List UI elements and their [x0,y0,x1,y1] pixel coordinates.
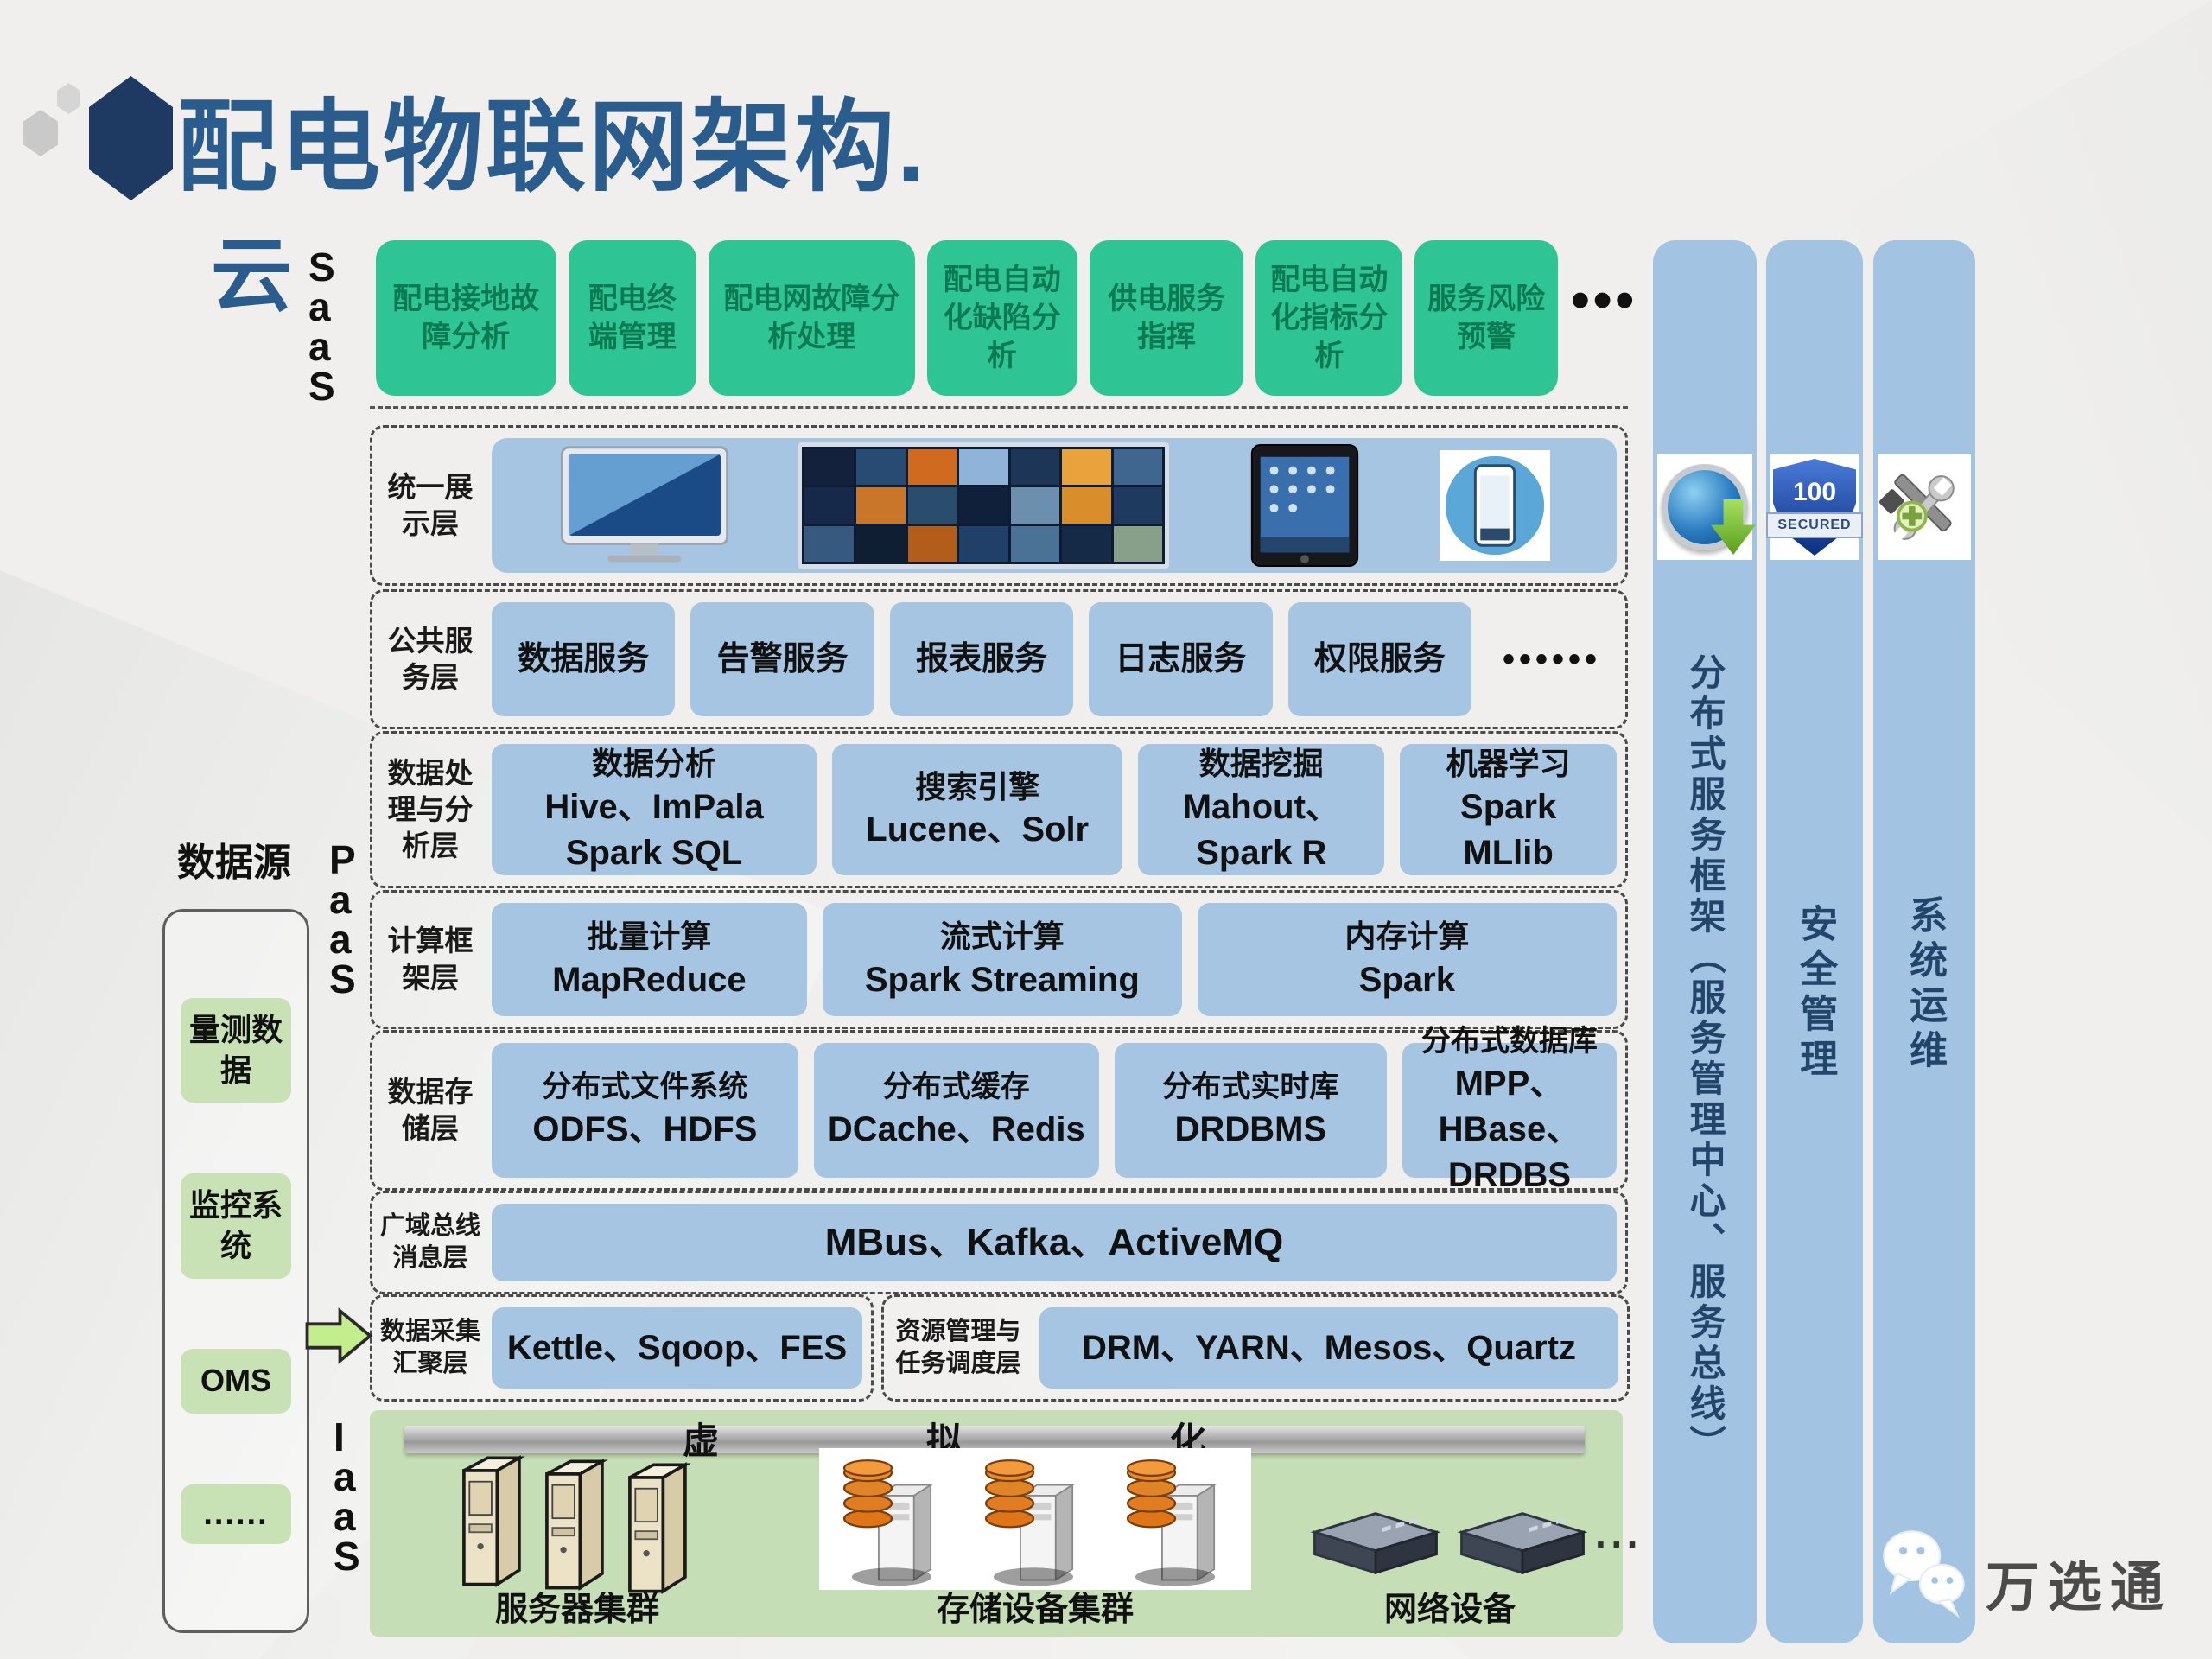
saas-ellipsis: ••• [1571,270,1637,331]
tech-box-line: Hive、ImPala [544,785,763,830]
slide-canvas: { "page": { "title": "配电物联网架构." }, "left… [0,0,2212,1659]
pillar-label: 系统运维 [1904,895,1944,1075]
tech-box-title: 内存计算 [1344,916,1469,957]
label-line: 析层 [402,828,459,864]
tech-box-title: 数据挖掘 [1199,743,1324,785]
tech-box: 搜索引擎 Lucene、Solr [832,744,1122,875]
logo-hexagon-small [23,110,58,156]
tech-box: 分布式实时库 DRDBMS [1115,1043,1387,1178]
tech-box: 数据挖掘 Mahout、 Spark R [1138,744,1384,875]
layer-common-services: 公共服 务层 数据服务 告警服务 报表服务 日志服务 权限服务 •••••• [370,589,1628,729]
globe-sync-icon [1662,464,1748,550]
label-line: 统一展 [388,469,474,505]
layer-scheduler: 资源管理与 任务调度层 DRM、YARN、Mesos、Quartz [881,1294,1630,1402]
tech-box: DRM、YARN、Mesos、Quartz [1039,1307,1618,1389]
tech-box-title: 流式计算 [940,916,1065,957]
datasource-ellipsis: ...... [181,1484,291,1544]
tech-box-line: Spark [1359,957,1455,1003]
tech-box-line: Mahout、 [1183,785,1340,830]
tech-rest: 、Redis [957,1110,1085,1148]
layer-storage: 数据存 储层 分布式文件系统 ODFS、HDFS 分布式缓存 DCache、Re… [370,1030,1628,1191]
green-arrow-icon [1711,499,1756,555]
layer-ingest: 数据采集 汇聚层 Kettle、Sqoop、FES [370,1294,874,1402]
tech-box-line: Spark SQL [566,830,743,876]
label-line: 数据存 [388,1074,474,1110]
tech-box-title: 分布式实时库 [1162,1068,1338,1107]
layer-storage-label: 数据存 储层 [372,1033,488,1188]
video-wall-icon [798,442,1169,569]
tech-box-title: 分布式数据库 [1421,1022,1598,1061]
tech-box: 批量计算 MapReduce [492,903,807,1016]
tech-box-title: 搜索引擎 [915,766,1039,808]
server-tower-icon [532,1455,615,1593]
layer-message-bus: 广域总线 消息层 MBus、Kafka、ActiveMQ [370,1191,1628,1294]
tech-box-title: 批量计算 [587,916,711,957]
label-line: 消息层 [392,1243,467,1274]
storage-cluster-group: 存储设备集群 [819,1448,1251,1630]
tech-rest: 、Kafka、ActiveMQ [929,1221,1284,1263]
saas-app-box: 配电自动化指标分析 [1255,240,1402,396]
tech-rest: 、HDFS [629,1110,758,1148]
iaas-rail-label: IaaS [334,1417,346,1576]
datasource-item: 监控系统 [181,1173,291,1279]
monitor-icon [558,444,731,567]
tech-box-line: Kettle、Sqoop、FES [507,1325,847,1371]
datasource-title: 数据源 [177,831,291,887]
label-line: 广域总线 [380,1211,480,1243]
tech-box-title: 数据分析 [592,743,716,785]
label-line: 任务调度层 [895,1348,1020,1380]
layer-display: 统一展 示层 [370,425,1628,586]
tech-box-line: Spark R [1196,830,1326,876]
service-box: 告警服务 [690,602,874,716]
pillar-iconbox [1657,454,1752,560]
pillar-iconbox: 100 SECURED [1770,454,1859,560]
dashed-separator [370,406,1628,409]
storage-array-icon [824,1448,959,1590]
layer-bus-label: 广域总线 消息层 [372,1193,488,1292]
pillar-label: 安全管理 [1795,904,1834,1084]
label-line: 汇聚层 [392,1348,467,1380]
layer-processing: 数据处 理与分 析层 数据分析 Hive、ImPala Spark SQL 搜索… [370,731,1628,888]
tech-box: 内存计算 Spark [1198,903,1617,1016]
shield-banner: SECURED [1766,512,1863,538]
layer-compute-label: 计算框 架层 [372,893,488,1027]
tech-bold: ODFS [532,1110,628,1148]
label-line: 架层 [402,960,459,996]
logo-hexagon-icon [89,76,173,200]
tech-box-title: 机器学习 [1446,743,1571,785]
layer-compute: 计算框 架层 批量计算 MapReduce 流式计算 Spark Streami… [370,890,1628,1029]
tech-box: 分布式文件系统 ODFS、HDFS [492,1043,798,1178]
tech-box: 数据分析 Hive、ImPala Spark SQL [492,744,817,875]
server-cluster-group: 服务器集群 [430,1452,724,1630]
label-line: 储层 [402,1110,459,1147]
tech-box-line: Lucene、Solr [866,807,1089,853]
label-line: 计算框 [388,923,474,959]
label-line: 资源管理与 [895,1316,1020,1348]
tech-box: 分布式数据库 MPP、HBase、 DRDBS [1402,1043,1617,1178]
tech-bold: MBus [825,1221,929,1263]
security-shield-icon: 100 SECURED [1773,459,1856,556]
pillar-iconbox [1878,454,1971,560]
tech-box-title: 分布式文件系统 [542,1068,747,1107]
pillar-label: 分布式服务框架（服务管理中心、服务总线） [1686,653,1724,1465]
saas-app-box: 服务风险预警 [1414,240,1558,396]
saas-app-box: 配电网故障分析处理 [709,240,915,396]
dataflow-arrow-icon [301,1303,377,1369]
layer-scheduler-label: 资源管理与 任务调度层 [884,1297,1033,1399]
iaas-ellipsis: ··· [1595,1521,1643,1567]
server-cluster-label: 服务器集群 [430,1582,724,1630]
service-box: 日志服务 [1089,602,1272,716]
tech-bold: DCache [828,1110,957,1148]
layer-processing-label: 数据处 理与分 析层 [372,734,488,886]
pillar-system-operations: 系统运维 [1873,240,1975,1643]
tech-bold: DRM [1082,1329,1160,1367]
saas-app-box: 配电自动化缺陷分析 [927,240,1077,396]
saas-application-row: 配电接地故障分析 配电终端管理 配电网故障分析处理 配电自动化缺陷分析 供电服务… [376,240,1558,396]
layer-common-label: 公共服 务层 [372,592,488,727]
tech-box: 分布式缓存 DCache、Redis [814,1043,1099,1178]
tech-box: Kettle、Sqoop、FES [492,1307,862,1389]
server-tower-icon [615,1459,698,1597]
saas-app-box: 配电接地故障分析 [376,240,556,396]
layer-ingest-label: 数据采集 汇聚层 [372,1297,488,1399]
tech-box-line: MapReduce [552,957,747,1003]
shield-value: 100 [1773,478,1856,507]
watermark-text: 万选通 [1986,1543,2172,1621]
logo-hexagon-small [57,83,80,114]
tablet-icon [1236,442,1373,569]
tech-rest: 、YARN、Mesos、Quartz [1160,1329,1576,1367]
tech-box: MBus、Kafka、ActiveMQ [492,1204,1617,1281]
maintenance-tools-icon [1879,462,1969,552]
network-device-icon [1307,1502,1444,1580]
label-line: 务层 [402,659,459,696]
service-box: 报表服务 [890,602,1073,716]
wechat-icon [1877,1519,1974,1633]
pillar-security-management: 100 SECURED 安全管理 [1766,240,1863,1643]
tech-box-line: Spark Streaming [865,957,1140,1003]
tech-bold: DRDBMS [1175,1110,1327,1148]
datasource-item: 量测数据 [181,998,291,1103]
saas-app-box: 配电终端管理 [569,240,696,396]
storage-array-icon [966,1448,1101,1590]
tech-box: 机器学习 Spark MLlib [1400,744,1617,875]
tech-box-line: MLlib [1463,830,1553,876]
cloud-label: 云 [211,235,292,316]
display-device-strip [492,438,1617,573]
network-device-label: 网络设备 [1307,1582,1592,1630]
tech-box: 流式计算 Spark Streaming [823,903,1182,1016]
label-line: 理与分 [388,791,474,828]
label-line: 数据采集 [380,1316,480,1348]
page-title: 配电物联网架构. [177,66,927,211]
storage-array-icon [1108,1448,1243,1590]
saas-app-box: 供电服务指挥 [1090,240,1244,396]
label-line: 公共服 [388,623,474,659]
label-line: 示层 [402,505,459,542]
common-ellipsis: •••••• [1487,602,1617,716]
datasource-item: OMS [181,1349,291,1414]
network-device-group: 网络设备 [1307,1486,1592,1630]
tech-box-title: 分布式缓存 [883,1068,1030,1107]
server-tower-icon [449,1452,532,1590]
saas-rail-label: SaaS [308,247,321,406]
smartphone-icon [1440,450,1550,561]
iaas-panel: 虚拟化 服务器集群 存储设备集群 网络设备 [370,1410,1623,1637]
paas-rail-label: PaaS [329,840,341,999]
layer-display-label: 统一展 示层 [372,428,488,583]
datasource-container: 量测数据 监控系统 OMS ...... [162,909,309,1633]
service-box: 权限服务 [1288,602,1471,716]
storage-cluster-label: 存储设备集群 [819,1582,1251,1630]
network-device-icon [1454,1502,1591,1580]
pillar-distributed-service-framework: 分布式服务框架（服务管理中心、服务总线） [1653,240,1757,1643]
tech-box-line: Spark [1460,785,1556,830]
label-line: 数据处 [388,755,474,791]
tech-rest: MPP、HBase、 [1439,1065,1581,1148]
service-box: 数据服务 [492,602,675,716]
shield-shape [1773,459,1856,556]
